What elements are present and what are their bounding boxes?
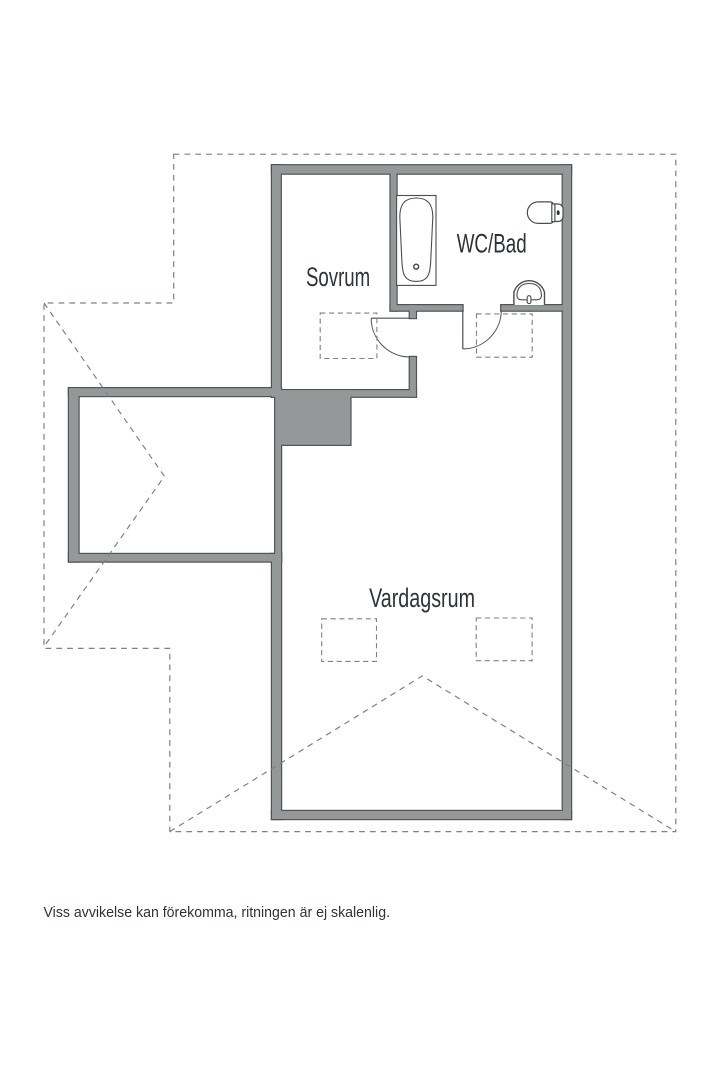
svg-text:Sovrum: Sovrum: [306, 262, 370, 292]
svg-text:Viss avvikelse kan förekomma,: Viss avvikelse kan förekomma, ritningen …: [44, 904, 391, 921]
svg-text:WC/Bad: WC/Bad: [457, 229, 527, 259]
svg-text:Vardagsrum: Vardagsrum: [369, 583, 475, 613]
